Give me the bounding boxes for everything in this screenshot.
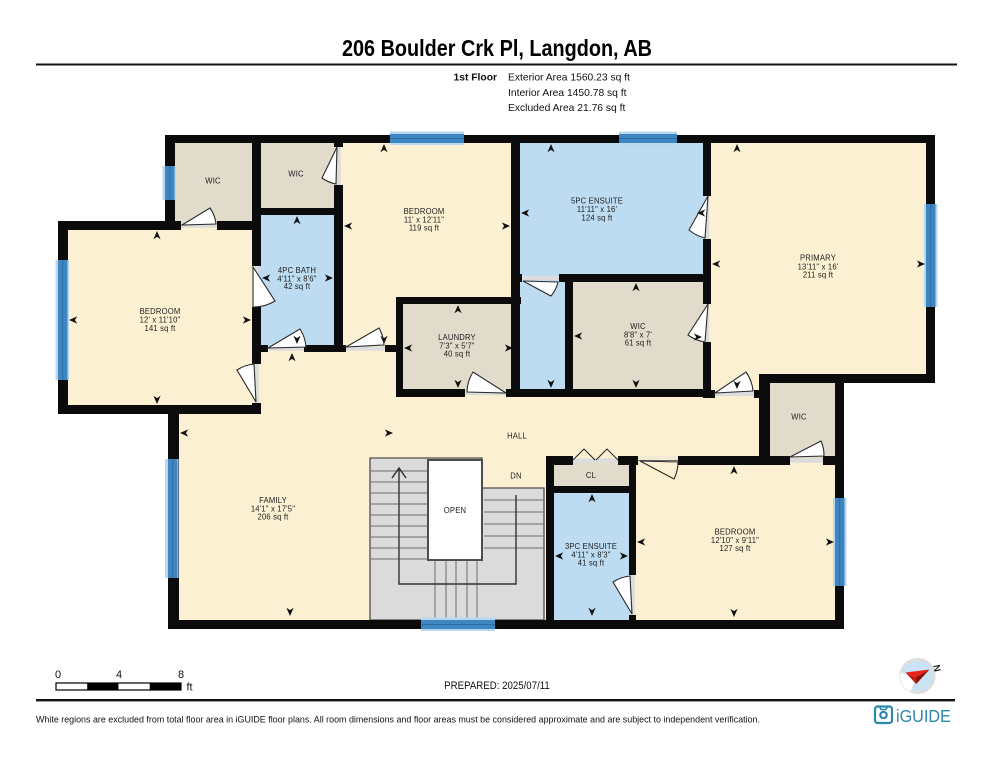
svg-text:WIC: WIC bbox=[791, 412, 806, 421]
svg-text:Exterior Area 1560.23 sq ft: Exterior Area 1560.23 sq ft bbox=[508, 73, 630, 84]
svg-text:WIC: WIC bbox=[205, 176, 220, 185]
svg-text:Excluded Area 21.76 sq ft: Excluded Area 21.76 sq ft bbox=[508, 103, 625, 114]
svg-text:HALL: HALL bbox=[507, 431, 527, 440]
svg-text:127 sq ft: 127 sq ft bbox=[720, 544, 751, 553]
svg-text:0: 0 bbox=[55, 669, 61, 681]
svg-text:206 sq ft: 206 sq ft bbox=[258, 512, 289, 521]
svg-text:OPEN: OPEN bbox=[444, 506, 466, 515]
svg-text:141 sq ft: 141 sq ft bbox=[145, 324, 176, 333]
svg-text:8: 8 bbox=[178, 669, 184, 681]
svg-text:DN: DN bbox=[510, 471, 521, 480]
svg-text:40 sq ft: 40 sq ft bbox=[444, 349, 471, 358]
svg-text:41 sq ft: 41 sq ft bbox=[578, 558, 605, 567]
svg-text:211 sq ft: 211 sq ft bbox=[803, 270, 834, 279]
svg-text:61 sq ft: 61 sq ft bbox=[625, 338, 652, 347]
svg-text:206 Boulder Crk Pl, Langdon, A: 206 Boulder Crk Pl, Langdon, AB bbox=[342, 35, 652, 61]
svg-text:WIC: WIC bbox=[288, 169, 303, 178]
svg-text:4: 4 bbox=[116, 669, 122, 681]
svg-text:124 sq ft: 124 sq ft bbox=[582, 213, 613, 222]
svg-text:1st Floor: 1st Floor bbox=[454, 73, 497, 84]
svg-text:PRIMARY: PRIMARY bbox=[800, 253, 836, 262]
svg-text:Interior Area 1450.78 sq ft: Interior Area 1450.78 sq ft bbox=[508, 88, 627, 99]
svg-text:iGUIDE: iGUIDE bbox=[896, 706, 951, 726]
svg-text:119 sq ft: 119 sq ft bbox=[409, 223, 440, 232]
svg-text:42 sq ft: 42 sq ft bbox=[284, 282, 311, 291]
svg-text:PREPARED: 2025/07/11: PREPARED: 2025/07/11 bbox=[444, 681, 550, 693]
svg-text:CL: CL bbox=[586, 471, 596, 480]
svg-text:White regions are excluded fro: White regions are excluded from total fl… bbox=[36, 715, 760, 726]
svg-text:ft: ft bbox=[187, 682, 193, 694]
